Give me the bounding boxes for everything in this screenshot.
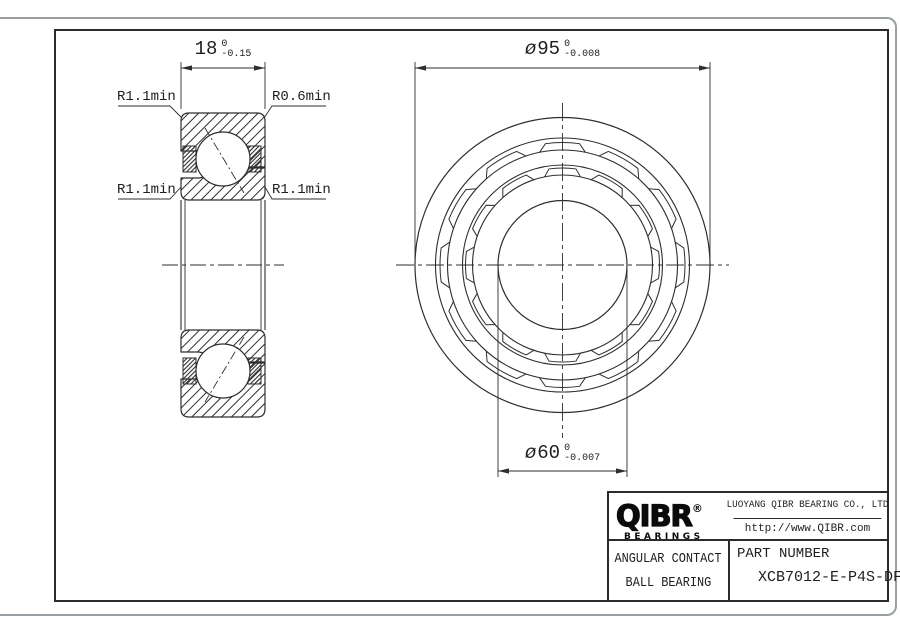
od-dimension-text: ø 95 0 -0.008	[415, 39, 710, 60]
company-website: http://www.QIBR.com	[728, 519, 887, 539]
company-name: LUOYANG QIBR BEARING CO., LTD	[734, 493, 882, 519]
fillet-label-top-right: R0.6min	[272, 89, 331, 105]
bore-tolerance: 0 -0.007	[564, 444, 600, 464]
product-type-line2: BALL BEARING	[626, 571, 712, 595]
fillet-label-mid-left: R1.1min	[117, 182, 176, 198]
part-number-cell: PART NUMBER XCB7012-E-P4S-DF	[728, 541, 887, 600]
brand-logo: QIBR® BEARINGS	[611, 494, 728, 539]
section-view	[118, 62, 326, 417]
part-number-label: PART NUMBER	[737, 546, 887, 562]
bore-dimension-text: ø 60 0 -0.007	[498, 443, 627, 464]
arrow-od-right	[699, 65, 710, 70]
title-block: QIBR® BEARINGS LUOYANG QIBR BEARING CO.,…	[607, 491, 889, 602]
width-value: 18	[195, 39, 218, 59]
diameter-symbol: ø	[525, 39, 536, 59]
fillet-label-top-left: R1.1min	[117, 89, 176, 105]
od-value: 95	[537, 39, 560, 59]
company-cell: LUOYANG QIBR BEARING CO., LTD http://www…	[728, 493, 887, 539]
width-dimension-lines	[181, 62, 265, 109]
cage-section-upper-left	[183, 146, 196, 172]
drawing-sheet: 18 0 -0.15 R1.1min R0.6min R1.1min R1.1m…	[0, 0, 900, 636]
front-view	[396, 62, 729, 477]
bore-value: 60	[537, 443, 560, 463]
arrow-right	[254, 65, 265, 70]
arrow-bore-left	[498, 468, 509, 473]
product-type-cell: ANGULAR CONTACT BALL BEARING	[609, 541, 728, 600]
product-type-line1: ANGULAR CONTACT	[615, 547, 722, 571]
ball-upper	[196, 132, 250, 186]
brand-name: QIBR®	[616, 494, 728, 531]
diameter-symbol: ø	[525, 443, 536, 463]
registered-mark: ®	[692, 502, 703, 515]
arrow-left	[181, 65, 192, 70]
part-number: XCB7012-E-P4S-DF	[758, 569, 887, 586]
ball-lower	[196, 344, 250, 398]
arrow-bore-right	[616, 468, 627, 473]
fillet-label-mid-right: R1.1min	[272, 182, 331, 198]
cage-section-lower-left	[183, 358, 196, 384]
width-dimension-text: 18 0 -0.15	[181, 39, 265, 60]
od-tolerance: 0 -0.008	[564, 40, 600, 60]
arrow-od-left	[415, 65, 426, 70]
width-tolerance: 0 -0.15	[221, 40, 251, 60]
